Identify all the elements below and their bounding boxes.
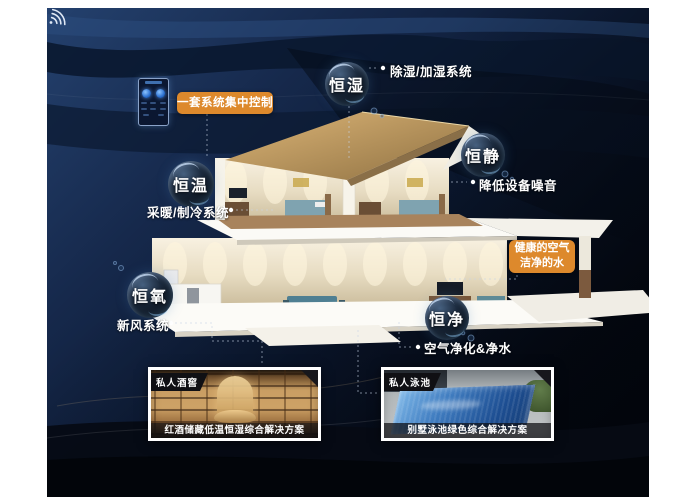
phone-row [139, 108, 168, 110]
wine-cellar-badge: 私人酒窖 [151, 373, 208, 391]
pool-badge: 私人泳池 [384, 373, 441, 391]
corner-fold-icon [534, 370, 551, 387]
phone-dials [139, 89, 168, 98]
note-fresh-air: 新风系统 [117, 315, 169, 334]
bubble-constant-oxygen: 恒氧 [127, 272, 173, 318]
phone-row [139, 114, 168, 116]
wine-cellar-card: 私人酒窖 红酒储藏低温恒湿综合解决方案 [148, 367, 321, 441]
phone-row [139, 102, 168, 104]
phone-titlebar [145, 81, 162, 84]
pool-caption: 别墅泳池绿色综合解决方案 [384, 423, 551, 438]
note-heating-cooling: 采暖/制冷系统 [147, 202, 229, 221]
healthy-air-water-callout: 健康的空气 洁净的水 [509, 240, 575, 273]
note-purification: 空气净化&净水 [424, 338, 512, 357]
wine-cellar-caption: 红酒储藏低温恒湿综合解决方案 [151, 423, 318, 438]
bubble-constant-temperature: 恒温 [168, 161, 214, 207]
infographic-frame: 一套系统集中控制 健康的空气 洁净的水 恒湿 恒静 恒温 恒氧 恒净 除湿/加湿… [0, 0, 700, 497]
dial-right [156, 89, 165, 98]
note-humidity-system: 除湿/加湿系统 [390, 61, 472, 80]
bubble-constant-clean: 恒净 [425, 296, 469, 340]
wine-cellar-photo: 私人酒窖 红酒储藏低温恒湿综合解决方案 [151, 370, 318, 438]
bubble-constant-quiet: 恒静 [461, 133, 505, 177]
bubble-constant-humidity: 恒湿 [325, 62, 369, 106]
smartphone-icon [138, 78, 169, 126]
wifi-icon [47, 8, 67, 26]
note-noise-reduction: 降低设备噪音 [479, 175, 557, 194]
artwork-canvas: 一套系统集中控制 健康的空气 洁净的水 恒湿 恒静 恒温 恒氧 恒净 除湿/加湿… [47, 8, 649, 497]
healthy-air-line: 健康的空气 [509, 241, 575, 256]
dial-left [142, 89, 151, 98]
pool-photo: 私人泳池 别墅泳池绿色综合解决方案 [384, 370, 551, 438]
pool-card: 私人泳池 别墅泳池绿色综合解决方案 [381, 367, 554, 441]
central-control-callout: 一套系统集中控制 [177, 92, 273, 114]
corner-fold-icon [301, 370, 318, 387]
clean-water-line: 洁净的水 [509, 256, 575, 271]
